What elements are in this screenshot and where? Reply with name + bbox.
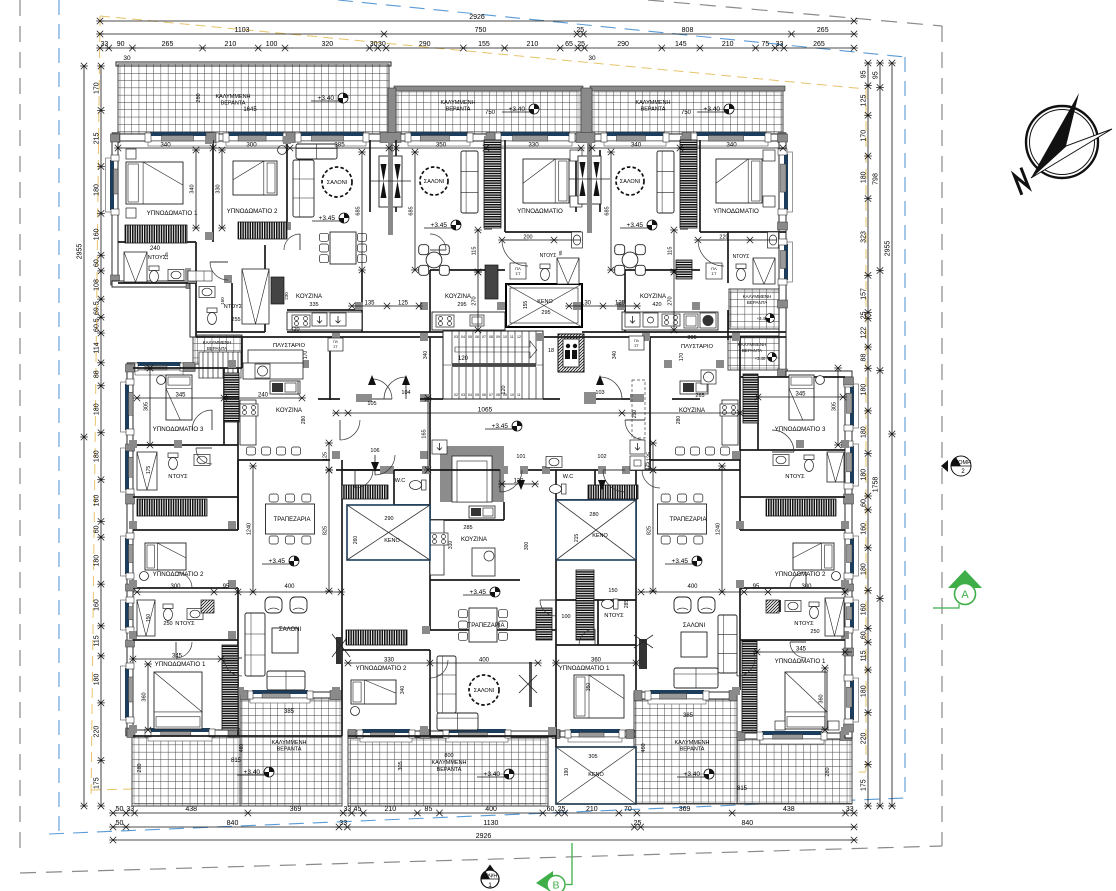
svg-text:125: 125 bbox=[861, 95, 868, 107]
svg-text:103: 103 bbox=[595, 390, 604, 396]
svg-text:290: 290 bbox=[617, 41, 629, 48]
svg-text:33: 33 bbox=[776, 41, 784, 48]
svg-text:460: 460 bbox=[641, 743, 647, 752]
svg-text:323: 323 bbox=[861, 231, 868, 243]
svg-text:ΠΛ: ΠΛ bbox=[634, 339, 640, 343]
svg-text:125: 125 bbox=[398, 301, 409, 307]
svg-text:438: 438 bbox=[783, 806, 795, 813]
svg-text:295: 295 bbox=[457, 302, 466, 308]
svg-text:25: 25 bbox=[558, 806, 566, 813]
svg-text:400: 400 bbox=[687, 584, 698, 590]
svg-text:ΚΑΛΥΜΜΕΝΗ: ΚΑΛΥΜΜΕΝΗ bbox=[271, 740, 306, 746]
svg-text:114: 114 bbox=[94, 342, 101, 353]
svg-text:180: 180 bbox=[94, 555, 101, 567]
svg-text:150: 150 bbox=[146, 614, 152, 623]
svg-text:220: 220 bbox=[94, 726, 101, 738]
svg-text:285: 285 bbox=[624, 600, 630, 609]
svg-text:750: 750 bbox=[475, 27, 487, 34]
svg-text:ΣΑΛΟΝΙ: ΣΑΛΟΝΙ bbox=[620, 179, 641, 185]
svg-text:ΟΨΗ: ΟΨΗ bbox=[485, 874, 498, 880]
svg-text:340: 340 bbox=[631, 142, 642, 149]
svg-text:157: 157 bbox=[861, 288, 868, 300]
svg-text:95: 95 bbox=[558, 250, 563, 256]
svg-text:155: 155 bbox=[478, 41, 490, 48]
svg-text:ΒΕΡΑΝΤΑ: ΒΕΡΑΝΤΑ bbox=[446, 107, 471, 113]
svg-text:88: 88 bbox=[861, 354, 868, 362]
svg-text:101: 101 bbox=[516, 454, 525, 460]
svg-text:ΚΕΝΟ: ΚΕΝΟ bbox=[537, 299, 553, 305]
svg-text:1240: 1240 bbox=[716, 523, 722, 535]
svg-text:280: 280 bbox=[676, 416, 682, 425]
svg-text:180: 180 bbox=[861, 171, 868, 183]
svg-text:175: 175 bbox=[94, 777, 101, 789]
svg-text:290: 290 bbox=[419, 41, 431, 48]
svg-text:210: 210 bbox=[527, 41, 539, 48]
svg-text:265: 265 bbox=[817, 27, 829, 34]
svg-text:ΚΑΛΥΜΜΕΝΗ: ΚΑΛΥΜΜΕΝΗ bbox=[743, 294, 772, 299]
svg-text:210: 210 bbox=[225, 41, 237, 48]
svg-text:220: 220 bbox=[861, 733, 868, 745]
svg-text:25: 25 bbox=[634, 820, 642, 827]
svg-text:ΒΕΡΑΝΤΑ: ΒΕΡΑΝΤΑ bbox=[641, 107, 666, 113]
svg-text:180: 180 bbox=[94, 403, 101, 415]
svg-text:840: 840 bbox=[227, 820, 239, 827]
svg-text:340: 340 bbox=[160, 142, 171, 149]
svg-text:ΝΤΟΥΣ: ΝΤΟΥΣ bbox=[540, 253, 557, 259]
svg-text:95: 95 bbox=[861, 70, 868, 78]
svg-text:04: 04 bbox=[468, 393, 472, 397]
svg-text:A: A bbox=[961, 589, 969, 601]
svg-text:350: 350 bbox=[586, 683, 592, 692]
svg-text:03: 03 bbox=[454, 335, 458, 339]
svg-text:ΒΕΡΑΝΤΑ: ΒΕΡΑΝΤΑ bbox=[221, 101, 246, 107]
svg-text:210: 210 bbox=[586, 806, 598, 813]
svg-text:ΣΑΛΟΝΙ: ΣΑΛΟΝΙ bbox=[424, 179, 445, 185]
svg-text:115: 115 bbox=[472, 247, 478, 256]
svg-text:ΚΕΝΟ: ΚΕΝΟ bbox=[592, 533, 608, 539]
svg-text:250: 250 bbox=[810, 629, 819, 635]
svg-text:400: 400 bbox=[479, 658, 490, 664]
svg-text:290: 290 bbox=[632, 410, 638, 419]
svg-text:400: 400 bbox=[485, 806, 497, 813]
svg-text:ΥΠΝΟΔΩΜΑΤΙΟ: ΥΠΝΟΔΩΜΑΤΙΟ bbox=[517, 208, 563, 215]
svg-text:230: 230 bbox=[284, 292, 289, 300]
svg-text:115: 115 bbox=[668, 247, 674, 256]
svg-text:360: 360 bbox=[819, 694, 825, 703]
svg-text:ΒΕΡΑΝΤΑ: ΒΕΡΑΝΤΑ bbox=[437, 767, 462, 773]
svg-text:385: 385 bbox=[334, 142, 345, 149]
svg-text:100: 100 bbox=[266, 41, 278, 48]
svg-text:1758: 1758 bbox=[873, 477, 880, 493]
svg-text:ΝΤΟΥΣ: ΝΤΟΥΣ bbox=[785, 474, 805, 480]
svg-text:50: 50 bbox=[116, 806, 124, 813]
svg-text:280: 280 bbox=[589, 512, 598, 518]
svg-text:330: 330 bbox=[528, 142, 539, 149]
svg-text:305: 305 bbox=[832, 402, 838, 411]
svg-text:145: 145 bbox=[675, 41, 687, 48]
svg-text:106: 106 bbox=[370, 448, 379, 454]
svg-text:ΤΡΑΠΕΖΑΡΙΑ: ΤΡΑΠΕΖΑΡΙΑ bbox=[468, 623, 505, 629]
svg-text:125: 125 bbox=[323, 452, 329, 461]
svg-text:175: 175 bbox=[861, 779, 868, 791]
svg-text:ΝΤΟΥΣ: ΝΤΟΥΣ bbox=[733, 254, 750, 260]
svg-text:265: 265 bbox=[162, 41, 174, 48]
svg-text:180: 180 bbox=[861, 426, 868, 438]
svg-text:2955: 2955 bbox=[77, 244, 84, 260]
svg-text:340: 340 bbox=[423, 351, 429, 360]
svg-text:369: 369 bbox=[679, 806, 691, 813]
svg-text:240: 240 bbox=[150, 246, 161, 252]
svg-text:30: 30 bbox=[588, 55, 596, 62]
svg-text:ΥΠΝΟΔΩΜΑΤΙΟ 1: ΥΠΝΟΔΩΜΑΤΙΟ 1 bbox=[147, 210, 198, 217]
svg-text:125: 125 bbox=[647, 452, 653, 461]
svg-text:03: 03 bbox=[461, 393, 465, 397]
svg-text:180: 180 bbox=[861, 384, 868, 396]
svg-text:60: 60 bbox=[861, 499, 868, 507]
svg-text:330: 330 bbox=[216, 184, 222, 193]
svg-text:815: 815 bbox=[737, 786, 748, 792]
svg-text:ΝΤΟΥΣ: ΝΤΟΥΣ bbox=[794, 621, 814, 627]
svg-text:145: 145 bbox=[164, 252, 169, 260]
svg-text:190: 190 bbox=[564, 768, 570, 777]
svg-text:ΝΤΟΥΣ: ΝΤΟΥΣ bbox=[168, 474, 188, 480]
svg-text:ΥΠΝΟΔΩΜΑΤΙΟ 3: ΥΠΝΟΔΩΜΑΤΙΟ 3 bbox=[775, 426, 826, 433]
svg-text:60: 60 bbox=[861, 631, 868, 639]
svg-text:265: 265 bbox=[813, 41, 825, 48]
svg-text:ΣΑΛΟΝΙ: ΣΑΛΟΝΙ bbox=[683, 623, 706, 629]
svg-text:ΥΠΝΟΔΩΜΑΤΙΟ: ΥΠΝΟΔΩΜΑΤΙΟ bbox=[713, 208, 759, 215]
svg-text:825: 825 bbox=[323, 526, 329, 535]
svg-text:ΠΛΥΣΤΑΡΙΟ: ΠΛΥΣΤΑΡΙΟ bbox=[273, 343, 306, 349]
svg-text:ΚΑΛΥΜΜΕΝΗ: ΚΑΛΥΜΜΕΝΗ bbox=[215, 94, 250, 100]
svg-text:360: 360 bbox=[591, 658, 602, 664]
svg-text:165: 165 bbox=[422, 429, 428, 438]
svg-text:ΚΑΛΥΜΜΕΝΗ: ΚΑΛΥΜΜΕΝΗ bbox=[203, 340, 232, 345]
svg-text:ΚΟΥΖΙΝΑ: ΚΟΥΖΙΝΑ bbox=[461, 537, 487, 543]
svg-text:800: 800 bbox=[444, 753, 453, 759]
svg-text:385: 385 bbox=[284, 709, 295, 715]
svg-text:90: 90 bbox=[117, 41, 125, 48]
svg-text:345: 345 bbox=[175, 393, 186, 399]
svg-text:300: 300 bbox=[801, 584, 812, 590]
svg-text:180: 180 bbox=[94, 673, 101, 685]
svg-text:05: 05 bbox=[468, 335, 472, 339]
svg-text:120: 120 bbox=[458, 356, 469, 362]
svg-text:115: 115 bbox=[861, 650, 868, 661]
svg-text:60: 60 bbox=[547, 806, 555, 813]
svg-text:240: 240 bbox=[258, 393, 269, 399]
svg-text:840: 840 bbox=[742, 820, 754, 827]
svg-text:400: 400 bbox=[284, 584, 295, 590]
svg-text:115: 115 bbox=[94, 635, 101, 646]
svg-text:135: 135 bbox=[364, 301, 375, 307]
svg-text:06: 06 bbox=[482, 393, 486, 397]
svg-text:45: 45 bbox=[354, 806, 362, 813]
svg-text:11: 11 bbox=[517, 393, 521, 397]
svg-text:750: 750 bbox=[485, 110, 496, 116]
svg-text:07: 07 bbox=[489, 393, 493, 397]
svg-text:340: 340 bbox=[190, 184, 196, 193]
svg-text:02: 02 bbox=[454, 393, 458, 397]
svg-text:175: 175 bbox=[146, 466, 152, 475]
svg-text:+3.40: +3.40 bbox=[757, 316, 768, 321]
svg-text:95: 95 bbox=[873, 71, 880, 79]
svg-text:170: 170 bbox=[94, 82, 101, 94]
svg-text:ΥΠΝΟΔΩΜΑΤΙΟ 2: ΥΠΝΟΔΩΜΑΤΙΟ 2 bbox=[356, 665, 407, 672]
svg-text:ΚΟΥΖΙΝΑ: ΚΟΥΖΙΝΑ bbox=[640, 294, 666, 300]
svg-text:180: 180 bbox=[94, 184, 101, 196]
svg-text:340: 340 bbox=[400, 686, 406, 695]
svg-text:07: 07 bbox=[482, 335, 486, 339]
svg-text:ΚΑΛΥΜΜΕΝΗ: ΚΑΛΥΜΜΕΝΗ bbox=[738, 342, 767, 347]
svg-text:180: 180 bbox=[861, 685, 868, 697]
svg-text:ΒΕΡΑΝΤΑ: ΒΕΡΑΝΤΑ bbox=[742, 348, 762, 353]
svg-text:2926: 2926 bbox=[476, 833, 492, 840]
svg-text:125: 125 bbox=[615, 301, 626, 307]
svg-text:ΥΠΝΟΔΩΜΑΤΙΟ 2: ΥΠΝΟΔΩΜΑΤΙΟ 2 bbox=[775, 571, 826, 578]
svg-text:385: 385 bbox=[683, 713, 694, 719]
svg-text:170: 170 bbox=[861, 130, 868, 142]
svg-text:285: 285 bbox=[463, 525, 472, 531]
svg-text:685: 685 bbox=[409, 206, 415, 215]
svg-text:85: 85 bbox=[425, 806, 433, 813]
svg-text:108: 108 bbox=[94, 279, 101, 291]
svg-text:290: 290 bbox=[384, 516, 393, 522]
svg-text:60.5: 60.5 bbox=[94, 318, 101, 332]
svg-text:1: 1 bbox=[488, 882, 492, 889]
svg-text:05: 05 bbox=[475, 393, 479, 397]
svg-text:350: 350 bbox=[436, 142, 447, 149]
svg-text:75: 75 bbox=[761, 41, 769, 48]
svg-text:ΠΛ: ΠΛ bbox=[333, 340, 339, 344]
svg-text:12: 12 bbox=[517, 335, 521, 339]
svg-text:170: 170 bbox=[679, 353, 685, 362]
svg-text:808: 808 bbox=[682, 27, 694, 34]
svg-text:25: 25 bbox=[576, 27, 584, 34]
svg-text:340: 340 bbox=[612, 351, 618, 360]
svg-text:ΚΑΛΥΜΜΕΝΗ: ΚΑΛΥΜΜΕΝΗ bbox=[674, 740, 709, 746]
svg-text:ΥΠΝΟΔΩΜΑΤΙΟ 3: ΥΠΝΟΔΩΜΑΤΙΟ 3 bbox=[153, 426, 204, 433]
svg-text:320: 320 bbox=[321, 41, 333, 48]
svg-text:ΣΤ: ΣΤ bbox=[712, 271, 717, 276]
svg-text:ΣΑΛΟΝΙ: ΣΑΛΟΝΙ bbox=[327, 180, 348, 186]
svg-text:369: 369 bbox=[290, 806, 302, 813]
svg-text:1130: 1130 bbox=[483, 820, 498, 827]
svg-text:04: 04 bbox=[461, 335, 465, 339]
svg-text:ΤΡΑΠΕΖΑΡΙΑ: ΤΡΑΠΕΖΑΡΙΑ bbox=[670, 517, 707, 523]
svg-text:360: 360 bbox=[142, 692, 148, 701]
svg-text:ΥΠΝΟΔΩΜΑΤΙΟ 1: ΥΠΝΟΔΩΜΑΤΙΟ 1 bbox=[775, 658, 826, 665]
svg-text:270: 270 bbox=[668, 296, 674, 305]
svg-text:170: 170 bbox=[303, 351, 309, 360]
svg-text:1645: 1645 bbox=[243, 107, 257, 113]
svg-text:815: 815 bbox=[231, 758, 242, 764]
svg-text:280: 280 bbox=[825, 767, 831, 776]
svg-text:ΤΟΜΗ: ΤΟΜΗ bbox=[955, 460, 971, 466]
svg-text:B: B bbox=[552, 880, 559, 891]
svg-text:ΥΠΝΟΔΩΜΑΤΙΟ 2: ΥΠΝΟΔΩΜΑΤΙΟ 2 bbox=[227, 208, 278, 215]
svg-text:10: 10 bbox=[503, 335, 507, 339]
svg-text:120: 120 bbox=[501, 385, 507, 394]
svg-text:305: 305 bbox=[144, 402, 150, 411]
svg-text:210: 210 bbox=[385, 806, 397, 813]
svg-text:160: 160 bbox=[94, 228, 101, 240]
svg-text:685: 685 bbox=[356, 206, 362, 215]
svg-text:ΠΛΥΣΤΑΡΙΟ: ΠΛΥΣΤΑΡΙΟ bbox=[681, 344, 714, 350]
svg-text:270: 270 bbox=[472, 296, 478, 305]
svg-text:345: 345 bbox=[795, 392, 806, 398]
svg-text:215: 215 bbox=[574, 534, 580, 543]
svg-text:280: 280 bbox=[301, 416, 307, 425]
svg-text:25: 25 bbox=[577, 41, 585, 48]
svg-text:60: 60 bbox=[94, 259, 101, 267]
svg-text:ΣΑΛΟΝΙ: ΣΑΛΟΝΙ bbox=[279, 627, 302, 633]
svg-text:ΚΑΛΥΜΜΕΝΗ: ΚΑΛΥΜΜΕΝΗ bbox=[440, 100, 475, 106]
svg-text:280: 280 bbox=[137, 763, 143, 772]
svg-text:08: 08 bbox=[489, 335, 493, 339]
svg-text:ΒΕΡΑΝΤΑ: ΒΕΡΑΝΤΑ bbox=[207, 346, 227, 351]
svg-text:ΚΟΥΖΙΝΑ: ΚΟΥΖΙΝΑ bbox=[296, 294, 322, 300]
svg-text:ΝΤΟΥΣ: ΝΤΟΥΣ bbox=[604, 613, 624, 619]
svg-text:460: 460 bbox=[239, 744, 245, 753]
svg-text:104: 104 bbox=[401, 390, 410, 396]
svg-text:W.C: W.C bbox=[395, 478, 405, 484]
svg-text:330: 330 bbox=[384, 658, 395, 664]
svg-text:300: 300 bbox=[170, 584, 181, 590]
svg-text:ΣΤ: ΣΤ bbox=[516, 271, 521, 276]
svg-text:180: 180 bbox=[861, 563, 868, 575]
svg-text:160: 160 bbox=[94, 599, 101, 611]
svg-text:18: 18 bbox=[548, 348, 554, 354]
svg-text:105: 105 bbox=[367, 401, 376, 407]
svg-text:65: 65 bbox=[565, 41, 573, 48]
svg-text:685: 685 bbox=[605, 206, 611, 215]
svg-text:2926: 2926 bbox=[469, 14, 485, 21]
svg-text:438: 438 bbox=[185, 806, 197, 813]
svg-text:95: 95 bbox=[753, 584, 760, 590]
svg-text:160: 160 bbox=[94, 495, 101, 507]
svg-text:06: 06 bbox=[475, 335, 479, 339]
svg-text:215: 215 bbox=[94, 132, 101, 144]
svg-text:280: 280 bbox=[196, 93, 202, 102]
svg-text:150: 150 bbox=[608, 588, 617, 594]
svg-text:122: 122 bbox=[861, 327, 868, 339]
svg-text:295: 295 bbox=[541, 310, 550, 316]
svg-text:ΥΠΝΟΔΩΜΑΤΙΟ 1: ΥΠΝΟΔΩΜΑΤΙΟ 1 bbox=[559, 665, 610, 672]
svg-text:825: 825 bbox=[647, 526, 653, 535]
svg-text:33: 33 bbox=[100, 41, 108, 48]
svg-text:420: 420 bbox=[290, 327, 299, 333]
svg-text:305: 305 bbox=[398, 761, 404, 770]
svg-text:11: 11 bbox=[510, 335, 514, 339]
svg-text:160: 160 bbox=[861, 523, 868, 535]
svg-text:ΝΤΟΥΣ: ΝΤΟΥΣ bbox=[224, 304, 243, 310]
svg-text:ΒΕΡΑΝΤΑ: ΒΕΡΑΝΤΑ bbox=[747, 300, 767, 305]
svg-text:ΚΕΝΟ: ΚΕΝΟ bbox=[384, 538, 400, 544]
svg-text:10: 10 bbox=[510, 393, 514, 397]
svg-text:345: 345 bbox=[172, 654, 183, 660]
svg-text:150: 150 bbox=[220, 297, 225, 305]
svg-text:250: 250 bbox=[163, 621, 172, 627]
svg-text:60: 60 bbox=[94, 525, 101, 533]
svg-text:+3.40: +3.40 bbox=[755, 356, 766, 361]
svg-text:ΚΕΝΟ: ΚΕΝΟ bbox=[588, 772, 604, 778]
svg-text:ΥΠΝΟΔΩΜΑΤΙΟ 1: ΥΠΝΟΔΩΜΑΤΙΟ 1 bbox=[155, 661, 206, 668]
svg-text:30: 30 bbox=[123, 55, 131, 62]
svg-text:69.5: 69.5 bbox=[94, 301, 101, 315]
svg-text:ΚΟΥΖΙΝΑ: ΚΟΥΖΙΝΑ bbox=[276, 408, 302, 414]
svg-text:102: 102 bbox=[597, 454, 606, 460]
svg-text:1065: 1065 bbox=[478, 407, 493, 414]
svg-text:180: 180 bbox=[94, 450, 101, 462]
svg-text:750: 750 bbox=[681, 110, 692, 116]
svg-text:1103: 1103 bbox=[234, 27, 249, 34]
svg-text:420: 420 bbox=[652, 302, 661, 308]
svg-text:50: 50 bbox=[116, 820, 124, 827]
svg-text:255: 255 bbox=[231, 317, 240, 323]
svg-text:340: 340 bbox=[726, 142, 737, 149]
svg-text:300: 300 bbox=[524, 542, 530, 551]
svg-text:ΒΕΡΑΝΤΑ: ΒΕΡΑΝΤΑ bbox=[277, 747, 302, 753]
svg-text:88: 88 bbox=[94, 370, 101, 378]
svg-text:1240: 1240 bbox=[247, 523, 253, 535]
svg-text:100: 100 bbox=[561, 614, 570, 620]
svg-text:70: 70 bbox=[624, 806, 632, 813]
svg-text:2955: 2955 bbox=[885, 241, 892, 257]
svg-text:160: 160 bbox=[861, 603, 868, 615]
svg-text:ΝΤΟΥΣ: ΝΤΟΥΣ bbox=[175, 621, 195, 627]
svg-text:310: 310 bbox=[448, 541, 454, 550]
svg-text:265: 265 bbox=[695, 393, 704, 399]
svg-text:09: 09 bbox=[496, 335, 500, 339]
svg-text:345: 345 bbox=[796, 647, 807, 653]
svg-text:305: 305 bbox=[588, 754, 597, 760]
svg-text:95: 95 bbox=[223, 584, 230, 590]
svg-text:155: 155 bbox=[523, 301, 529, 310]
svg-text:300: 300 bbox=[246, 142, 257, 149]
svg-text:ΤΡΑΠΕΖΑΡΙΑ: ΤΡΑΠΕΖΑΡΙΑ bbox=[274, 517, 311, 523]
svg-text:260: 260 bbox=[353, 536, 359, 545]
svg-text:ΚΟΥΖΙΝΑ: ΚΟΥΖΙΝΑ bbox=[445, 294, 471, 300]
svg-text:ΣΑΛΟΝΙ: ΣΑΛΟΝΙ bbox=[474, 688, 495, 694]
svg-text:W.C: W.C bbox=[563, 474, 573, 480]
svg-text:125: 125 bbox=[645, 462, 651, 471]
svg-text:ΚΑΛΥΜΜΕΝΗ: ΚΑΛΥΜΜΕΝΗ bbox=[635, 100, 670, 106]
svg-text:395: 395 bbox=[687, 335, 696, 341]
svg-text:ΚΑΛΥΜΜΕΝΗ: ΚΑΛΥΜΜΕΝΗ bbox=[431, 760, 466, 766]
svg-text:210: 210 bbox=[722, 41, 734, 48]
svg-text:08: 08 bbox=[496, 393, 500, 397]
svg-text:130: 130 bbox=[581, 301, 592, 307]
svg-text:798: 798 bbox=[873, 173, 880, 185]
svg-text:180: 180 bbox=[861, 469, 868, 481]
svg-text:ΒΕΡΑΝΤΑ: ΒΕΡΑΝΤΑ bbox=[680, 747, 705, 753]
svg-text:335: 335 bbox=[309, 302, 318, 308]
